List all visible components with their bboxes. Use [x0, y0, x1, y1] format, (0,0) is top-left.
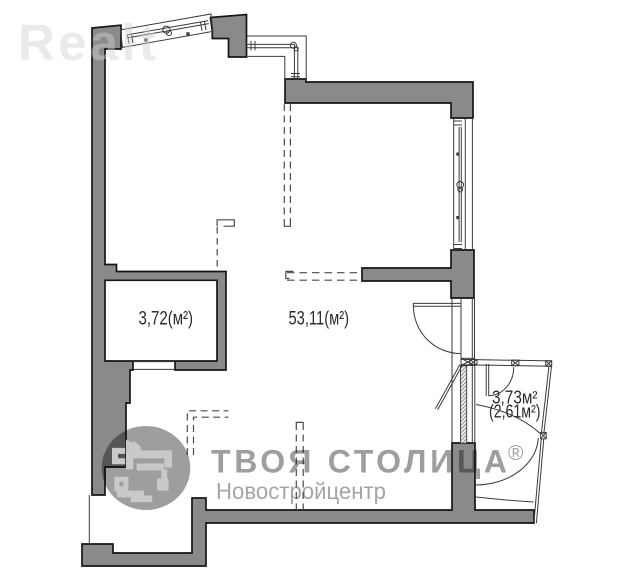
svg-text:ТВОЯ СТОЛИЦА: ТВОЯ СТОЛИЦА: [211, 444, 507, 480]
svg-text:(2,61м²): (2,61м²): [489, 402, 541, 422]
svg-text:®: ®: [508, 442, 524, 465]
svg-text:Новостройцентр: Новостройцентр: [216, 478, 386, 504]
svg-text:53,11(м²): 53,11(м²): [289, 309, 350, 330]
svg-text:3,72(м²): 3,72(м²): [139, 309, 194, 330]
